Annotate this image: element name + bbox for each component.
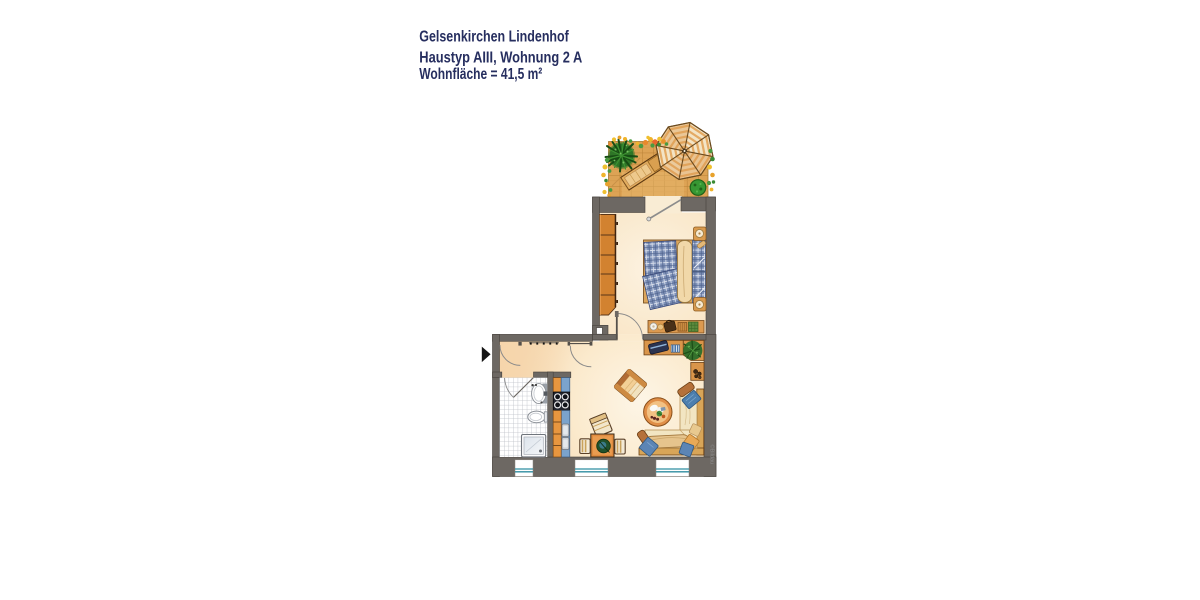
- svg-text:Wohnfläche = 41,5 m²: Wohnfläche = 41,5 m²: [419, 66, 542, 83]
- svg-text:©Bildau: ©Bildau: [709, 445, 716, 465]
- svg-text:Gelsenkirchen Lindenhof: Gelsenkirchen Lindenhof: [419, 29, 569, 46]
- svg-text:Haustyp AIII, Wohnung 2 A: Haustyp AIII, Wohnung 2 A: [419, 49, 582, 66]
